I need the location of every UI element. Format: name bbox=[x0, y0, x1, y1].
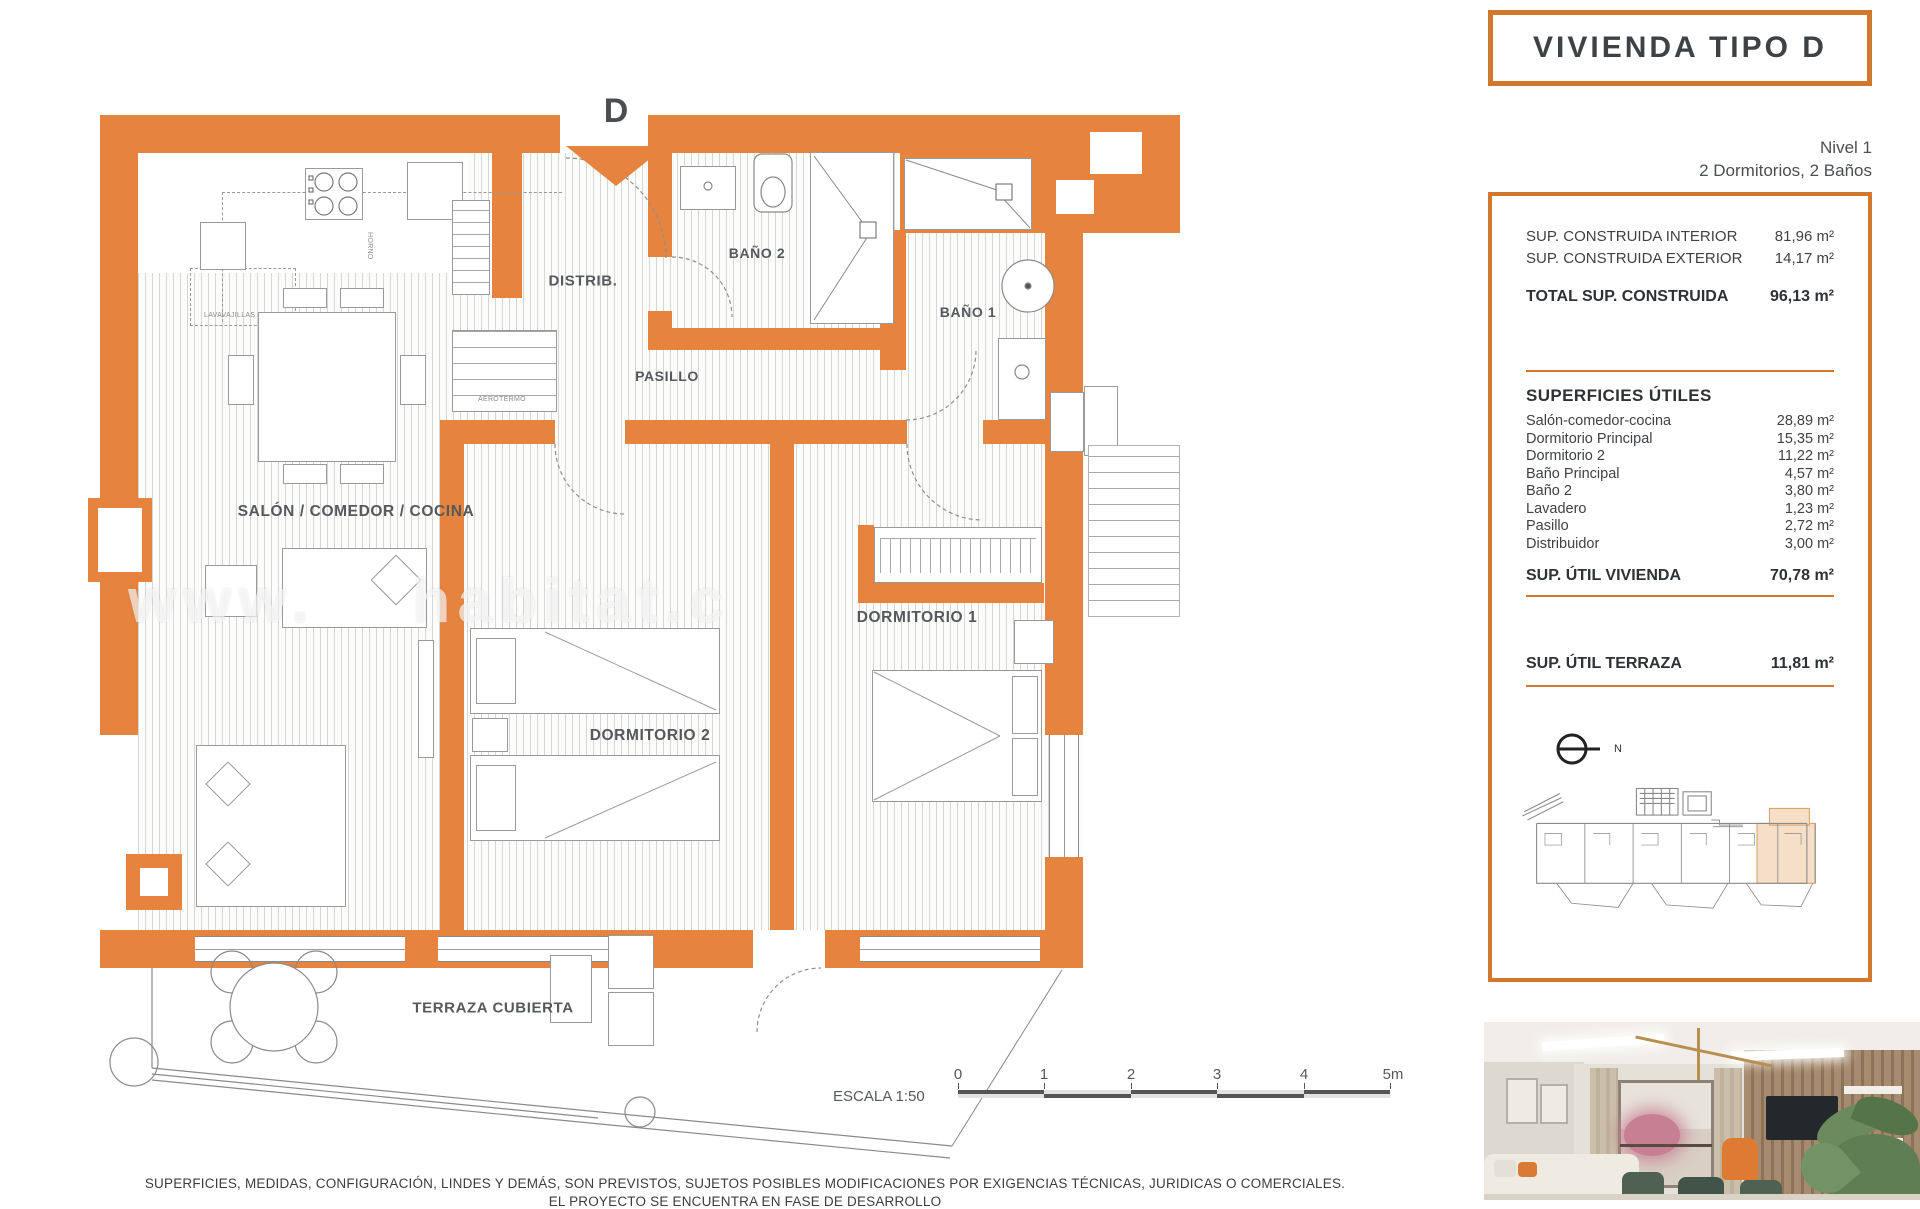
area-row: Lavadero1,23 m² bbox=[1526, 501, 1834, 519]
divider bbox=[1526, 595, 1834, 597]
area-label: SUP. ÚTIL TERRAZA bbox=[1526, 653, 1682, 675]
room-label-bano1: BAÑO 1 bbox=[940, 304, 997, 320]
area-value: 96,13 m² bbox=[1770, 286, 1834, 308]
built-row: SUP. CONSTRUIDA INTERIOR 81,96 m² bbox=[1526, 226, 1834, 248]
plan-title-box: VIVIENDA TIPO D bbox=[1488, 10, 1872, 86]
area-value: 2,72 m² bbox=[1785, 518, 1834, 536]
area-label: Salón-comedor-cocina bbox=[1526, 413, 1671, 431]
scale-tick-1: 1 bbox=[1040, 1066, 1048, 1083]
area-value: 28,89 m² bbox=[1777, 413, 1834, 431]
room-label-distrib: DISTRIB. bbox=[549, 273, 618, 290]
photo-floor bbox=[1484, 1194, 1920, 1200]
scale-bar: ESCALA 1:50 0 1 2 3 4 5m bbox=[833, 1066, 1433, 1114]
area-row: Salón-comedor-cocina28,89 m² bbox=[1526, 413, 1834, 431]
disclaimer-line-1: SUPERFICIES, MEDIDAS, CONFIGURACIÓN, LIN… bbox=[60, 1176, 1430, 1191]
room-label-salon: SALÓN / COMEDOR / COCINA bbox=[238, 503, 475, 521]
area-row: Dormitorio 211,22 m² bbox=[1526, 448, 1834, 466]
area-value: 70,78 m² bbox=[1770, 565, 1834, 587]
surface-data-panel: SUP. CONSTRUIDA INTERIOR 81,96 m² SUP. C… bbox=[1488, 192, 1872, 982]
area-label: SUP. CONSTRUIDA EXTERIOR bbox=[1526, 248, 1742, 270]
area-label: SUP. ÚTIL VIVIENDA bbox=[1526, 565, 1681, 587]
room-label-dormitorio2: DORMITORIO 2 bbox=[590, 727, 711, 745]
scale-tick-2: 2 bbox=[1127, 1066, 1135, 1083]
divider bbox=[1526, 370, 1834, 372]
photo-balcony-rail bbox=[1620, 1144, 1712, 1147]
entrance-label: D bbox=[604, 92, 629, 131]
room-label-dormitorio1: DORMITORIO 1 bbox=[857, 609, 978, 627]
photo-blossom-tree bbox=[1624, 1114, 1680, 1156]
area-row: Dormitorio Principal15,35 m² bbox=[1526, 431, 1834, 449]
north-label: N bbox=[1614, 743, 1622, 755]
built-row: SUP. CONSTRUIDA EXTERIOR 14,17 m² bbox=[1526, 248, 1834, 270]
hob-burners bbox=[309, 173, 357, 215]
room-label-bano2: BAÑO 2 bbox=[729, 245, 786, 261]
area-row: Distribuidor3,00 m² bbox=[1526, 536, 1834, 554]
page: LAVAVAJILLAS HORNO AEROTERMO bbox=[0, 0, 1920, 1200]
area-value: 11,22 m² bbox=[1778, 448, 1834, 466]
photo-shelf-1 bbox=[1844, 1086, 1902, 1094]
interior-render-photo bbox=[1484, 1022, 1920, 1200]
entrance-arrow-icon bbox=[566, 146, 666, 186]
room-label-terraza: TERRAZA CUBIERTA bbox=[412, 1000, 573, 1017]
area-label: Lavadero bbox=[1526, 501, 1586, 519]
level-line-1: Nivel 1 bbox=[1500, 136, 1872, 159]
scale-tick-4: 4 bbox=[1300, 1066, 1308, 1083]
compass: N bbox=[1550, 729, 1834, 769]
photo-pendant-bar-2 bbox=[1697, 1028, 1700, 1086]
watermark: www. habitat.c bbox=[128, 566, 730, 637]
photo-accent-chair bbox=[1722, 1138, 1758, 1180]
area-value: 3,80 m² bbox=[1785, 483, 1834, 501]
terrace-round-table bbox=[211, 951, 337, 1063]
photo-sofa-pillow-1 bbox=[1494, 1160, 1516, 1177]
plan-title: VIVIENDA TIPO D bbox=[1533, 31, 1827, 65]
built-total-row: TOTAL SUP. CONSTRUIDA 96,13 m² bbox=[1526, 286, 1834, 308]
area-label: Dormitorio Principal bbox=[1526, 431, 1653, 449]
area-row: Baño 23,80 m² bbox=[1526, 483, 1834, 501]
building-keyplan bbox=[1520, 771, 1836, 939]
photo-frame-2 bbox=[1540, 1084, 1568, 1124]
area-label: Baño 2 bbox=[1526, 483, 1572, 501]
usable-heading: SUPERFICIES ÚTILES bbox=[1526, 386, 1834, 406]
area-label: TOTAL SUP. CONSTRUIDA bbox=[1526, 286, 1728, 308]
disclaimer-line-2: EL PROYECTO SE ENCUENTRA EN FASE DE DESA… bbox=[60, 1194, 1430, 1209]
area-row: Pasillo2,72 m² bbox=[1526, 518, 1834, 536]
usable-total-row: SUP. ÚTIL VIVIENDA 70,78 m² bbox=[1526, 565, 1834, 587]
scale-tick-0: 0 bbox=[954, 1066, 962, 1083]
scale-tick-3: 3 bbox=[1213, 1066, 1221, 1083]
area-label: Distribuidor bbox=[1526, 536, 1599, 554]
area-label: Baño Principal bbox=[1526, 466, 1620, 484]
scale-tick-5: 5m bbox=[1383, 1066, 1404, 1083]
area-row: Baño Principal4,57 m² bbox=[1526, 466, 1834, 484]
area-label: Pasillo bbox=[1526, 518, 1569, 536]
scale-label: ESCALA 1:50 bbox=[833, 1088, 925, 1105]
room-label-pasillo: PASILLO bbox=[635, 368, 699, 384]
area-value: 11,81 m² bbox=[1771, 653, 1834, 675]
area-value: 4,57 m² bbox=[1785, 466, 1834, 484]
area-value: 14,17 m² bbox=[1775, 248, 1834, 270]
photo-sofa-pillow-2 bbox=[1518, 1162, 1537, 1177]
level-line-2: 2 Dormitorios, 2 Baños bbox=[1500, 159, 1872, 182]
photo-frame-1 bbox=[1506, 1078, 1538, 1124]
scale-bar-segments bbox=[958, 1090, 1390, 1099]
area-value: 81,96 m² bbox=[1775, 226, 1834, 248]
area-value: 15,35 m² bbox=[1777, 431, 1834, 449]
divider bbox=[1526, 685, 1834, 687]
terrace-row: SUP. ÚTIL TERRAZA 11,81 m² bbox=[1526, 653, 1834, 675]
area-value: 3,00 m² bbox=[1785, 536, 1834, 554]
shower-symbols bbox=[814, 156, 1030, 320]
usable-rows: Salón-comedor-cocina28,89 m² Dormitorio … bbox=[1526, 413, 1834, 553]
area-label: Dormitorio 2 bbox=[1526, 448, 1605, 466]
area-label: SUP. CONSTRUIDA INTERIOR bbox=[1526, 226, 1737, 248]
floor-plan: LAVAVAJILLAS HORNO AEROTERMO bbox=[0, 0, 1300, 1200]
level-info: Nivel 1 2 Dormitorios, 2 Baños bbox=[1500, 136, 1872, 182]
north-compass-icon bbox=[1550, 729, 1610, 769]
area-value: 1,23 m² bbox=[1785, 501, 1834, 519]
